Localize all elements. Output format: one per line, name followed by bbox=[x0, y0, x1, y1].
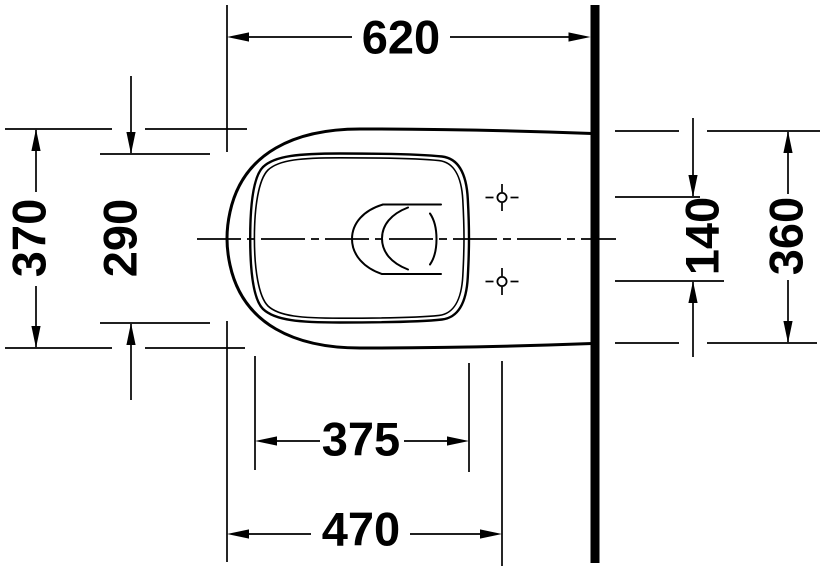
arrowhead-left bbox=[227, 529, 249, 538]
arrowhead-right bbox=[480, 529, 502, 538]
fixing-hole-bottom bbox=[486, 268, 519, 295]
toilet-dimension-diagram: 620 370 290 140 bbox=[0, 0, 822, 572]
dim-290: 290 bbox=[94, 76, 211, 400]
arrowhead-left bbox=[227, 32, 249, 41]
dim-140-label: 140 bbox=[676, 197, 729, 275]
arrowhead-left bbox=[255, 436, 277, 445]
dim-290-label: 290 bbox=[94, 199, 147, 277]
dim-140: 140 bbox=[615, 118, 729, 357]
dim-370-label: 370 bbox=[3, 199, 56, 277]
arrowhead-up bbox=[31, 129, 40, 151]
arrowhead-down bbox=[783, 321, 792, 343]
arrowhead-down bbox=[688, 175, 697, 197]
arrowhead-down bbox=[126, 132, 135, 154]
arrowhead-right bbox=[447, 436, 469, 445]
technical-drawing-canvas: 620 370 290 140 bbox=[0, 0, 822, 572]
arrowhead-down bbox=[31, 326, 40, 348]
arrowhead-up bbox=[126, 323, 135, 345]
arrowhead-up bbox=[783, 131, 792, 153]
dim-470-label: 470 bbox=[322, 503, 400, 556]
arrowhead-up bbox=[688, 281, 697, 303]
dim-360-label: 360 bbox=[760, 197, 813, 275]
arrowhead-right bbox=[569, 32, 591, 41]
dim-375: 375 bbox=[255, 356, 469, 472]
dim-620-label: 620 bbox=[362, 11, 440, 64]
fixing-hole-top bbox=[486, 184, 519, 211]
wall-line bbox=[591, 5, 600, 563]
dim-375-label: 375 bbox=[322, 413, 400, 466]
seat-rim-inner bbox=[254, 158, 464, 318]
fixing-hole-top-circle bbox=[497, 193, 506, 202]
fixing-hole-bottom-circle bbox=[497, 277, 506, 286]
